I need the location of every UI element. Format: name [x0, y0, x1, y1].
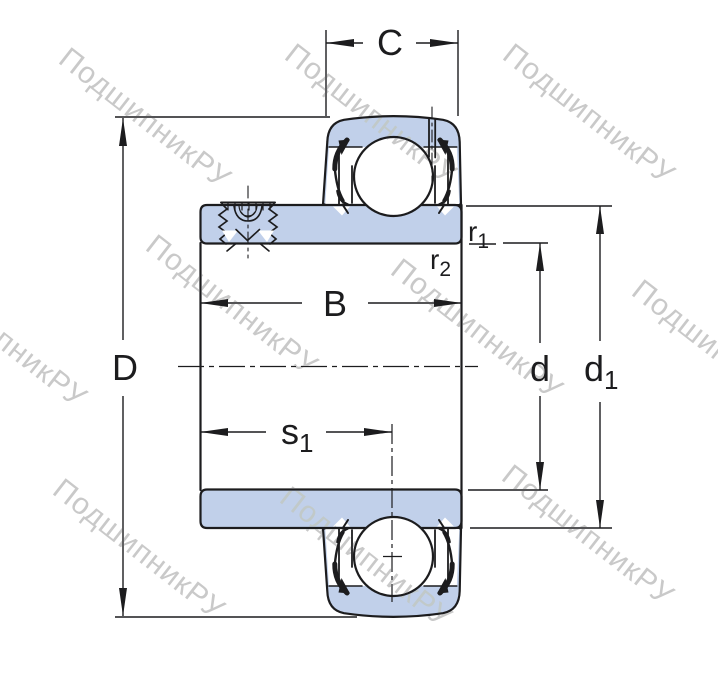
label-C: C: [377, 22, 403, 63]
bearing-diagram: C D B d d1 s1 r1 r2 ПодшипникРУ Подшипни…: [0, 0, 718, 682]
label-B: B: [323, 283, 347, 324]
bearing-drawing-page: C D B d d1 s1 r1 r2 ПодшипникРУ Подшипни…: [0, 0, 718, 682]
watermark-text: ПодшипникРУ: [0, 260, 93, 414]
watermark-text: ПодшипникРУ: [140, 228, 324, 382]
watermark-text: ПодшипникРУ: [53, 41, 237, 195]
label-D: D: [112, 347, 138, 388]
watermark-text: ПодшипникРУ: [497, 37, 681, 191]
label-d1: d1: [584, 348, 619, 395]
label-s1: s1: [281, 411, 313, 458]
watermark-text: ПодшипникРУ: [385, 252, 569, 406]
label-r1: r1: [468, 216, 489, 253]
watermark-text: ПодшипникРУ: [626, 273, 718, 427]
watermark-text: ПодшипникРУ: [496, 458, 680, 612]
